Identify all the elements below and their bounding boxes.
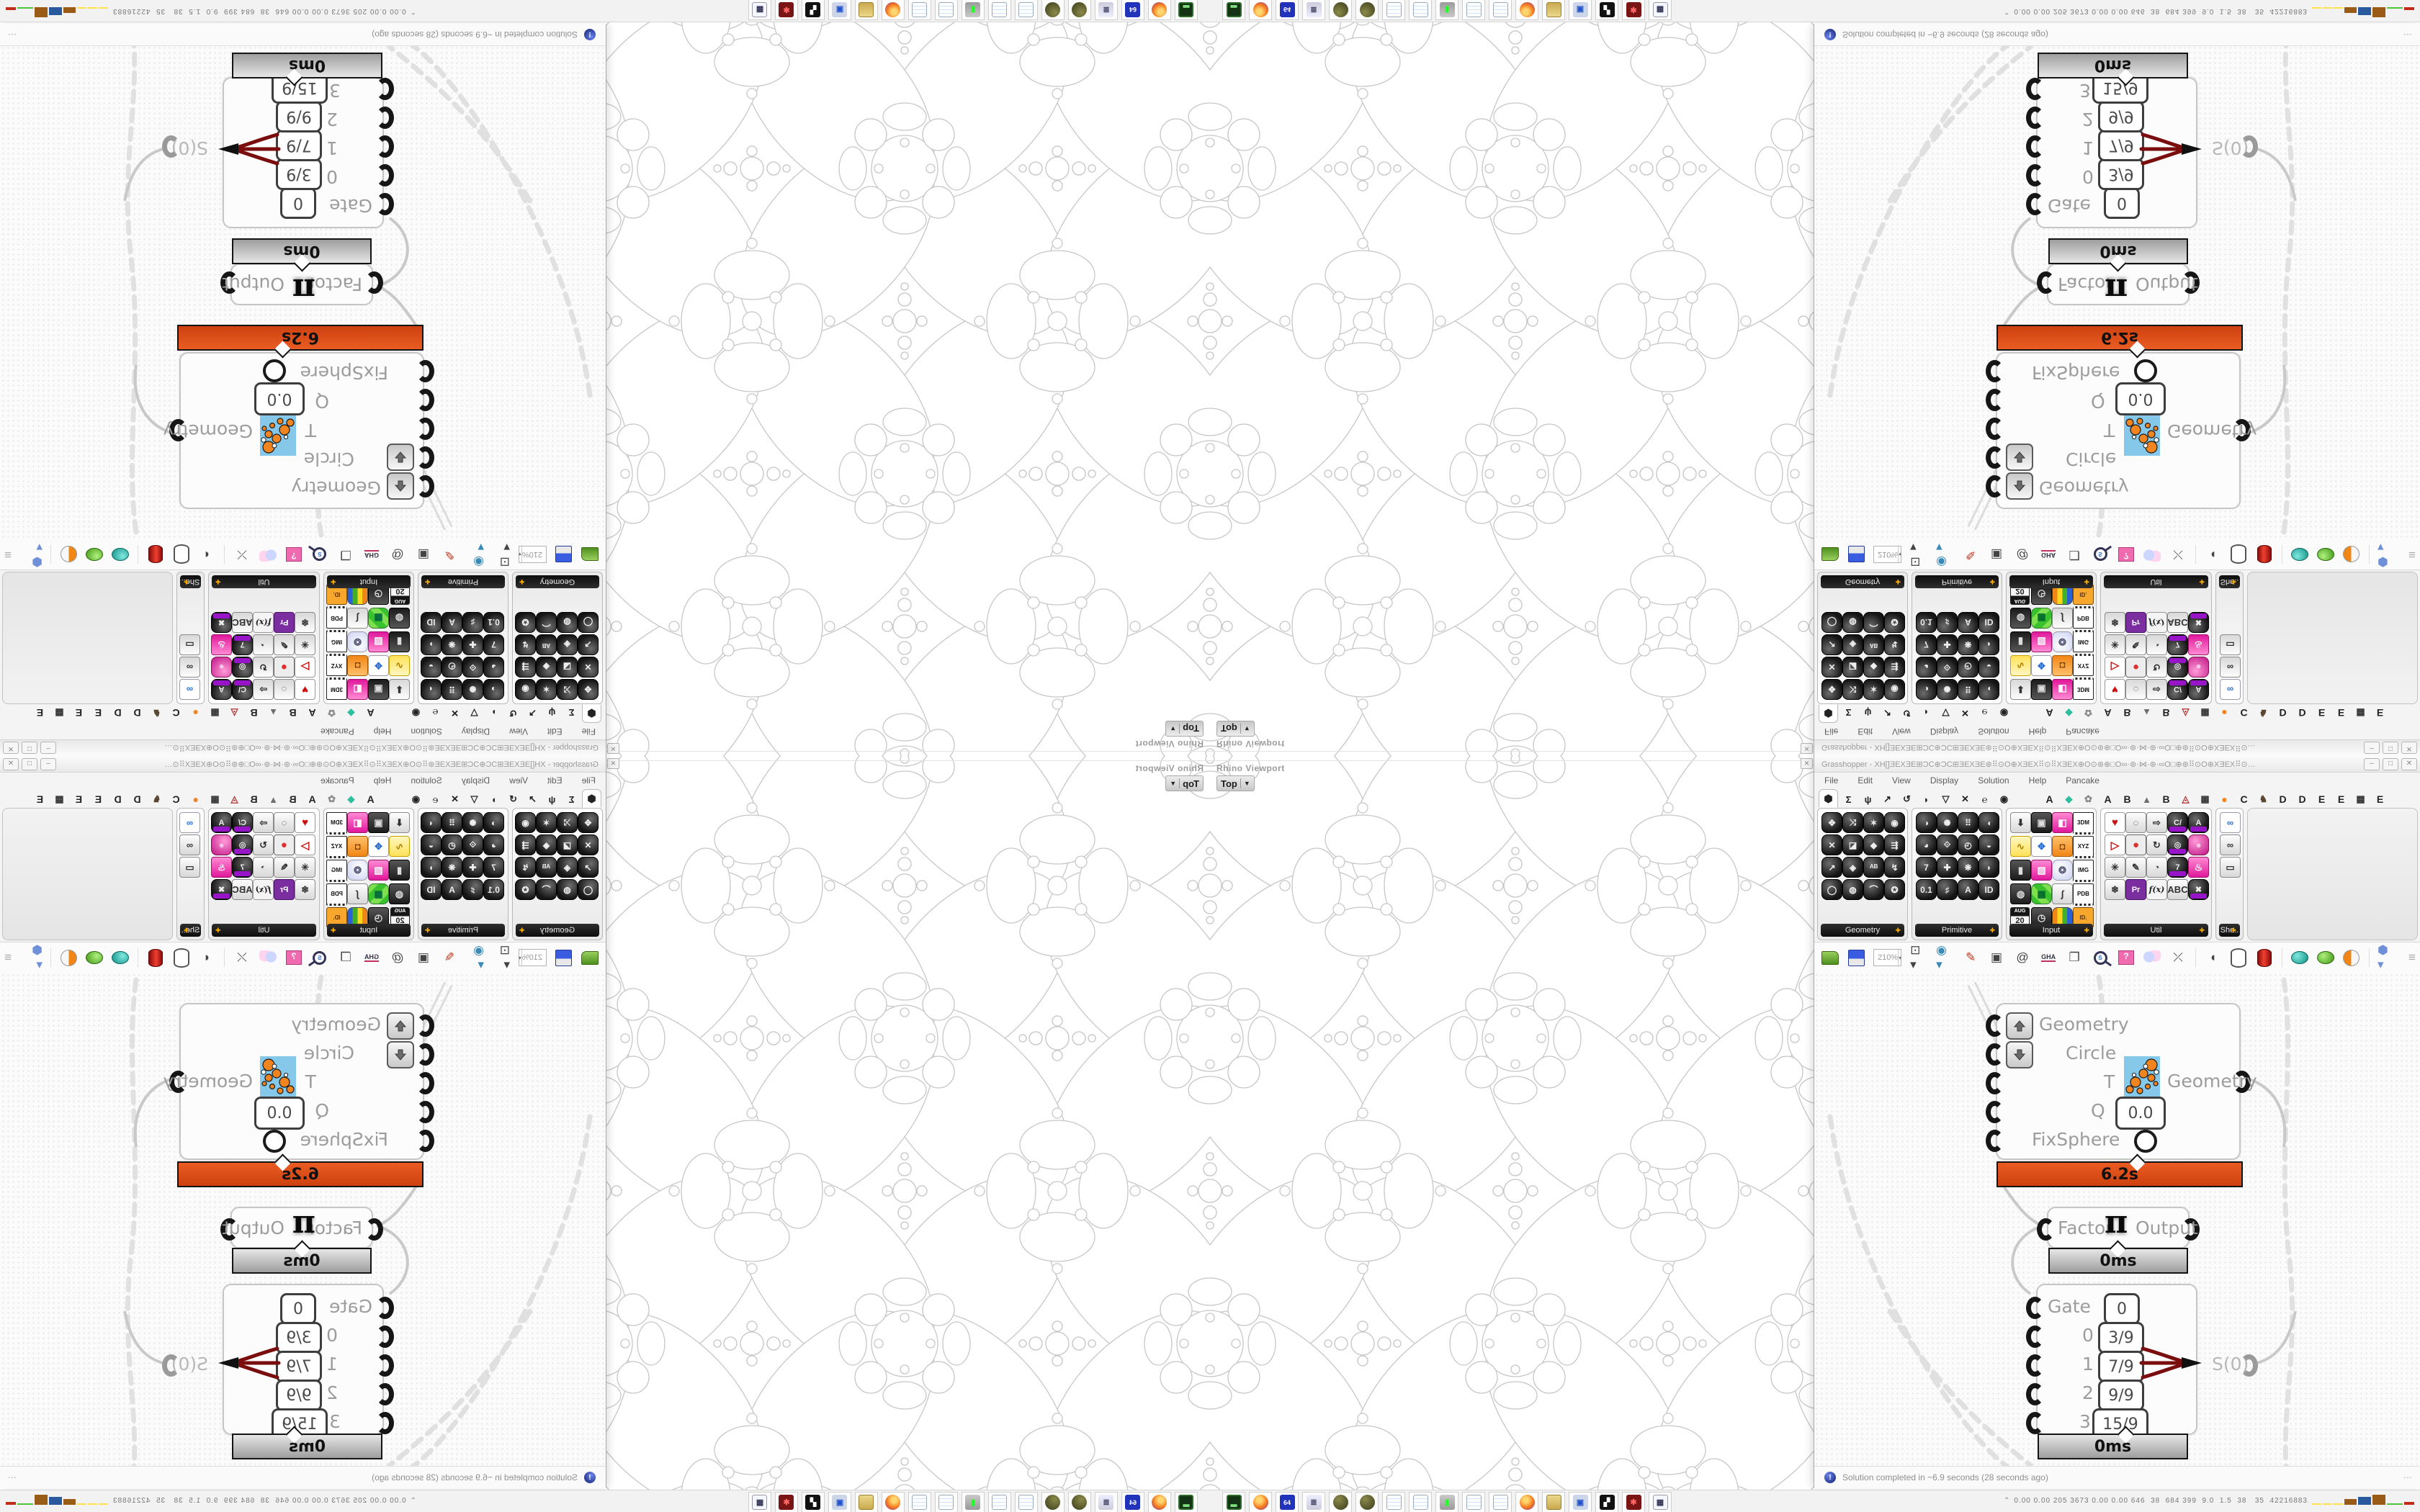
tab-display[interactable]: ◉ <box>407 791 425 808</box>
cat-icon[interactable]: ▞ <box>1595 1492 1618 1512</box>
floppy-64-icon[interactable]: 64 <box>1121 0 1144 20</box>
component-icon[interactable]: ◍ <box>2010 608 2031 629</box>
component-icon[interactable]: ∫ <box>347 883 368 904</box>
component-icon[interactable]: ◎ <box>232 657 253 678</box>
component-icon[interactable]: ◉ <box>1884 812 1905 833</box>
component-icon[interactable]: ❄ <box>2105 879 2125 900</box>
palette-group-label[interactable]: Input✚ <box>327 575 411 588</box>
tab-plugin-d2[interactable]: D <box>2293 791 2311 808</box>
component-icon[interactable]: ▮ <box>2010 860 2031 881</box>
component-icon[interactable]: 7 <box>2167 857 2188 878</box>
tab-plugin-e3[interactable]: E <box>2371 704 2389 721</box>
input-jack-0[interactable] <box>376 164 394 186</box>
component-icon[interactable]: ▮ <box>2010 631 2031 652</box>
component-icon[interactable]: ✶ <box>536 812 557 833</box>
component-icon[interactable]: ⤨ <box>1842 679 1863 700</box>
component-icon[interactable]: ✎ <box>2125 857 2146 878</box>
input-jack-1[interactable] <box>376 1354 394 1377</box>
close-icon[interactable]: ✕ <box>607 758 619 769</box>
tab-mesh[interactable]: ▽ <box>465 791 483 808</box>
open-file-icon[interactable] <box>581 545 599 564</box>
notepad-icon-2[interactable] <box>988 0 1011 20</box>
tab-plugin-e3[interactable]: E <box>2371 791 2389 808</box>
q-value-box[interactable]: 0.0 <box>2115 382 2166 415</box>
tab-mesh[interactable]: ▽ <box>465 704 483 721</box>
component-icon[interactable]: ● <box>274 657 295 678</box>
finder-icon[interactable]: S <box>2092 948 2109 967</box>
folder-icon[interactable] <box>1542 1492 1565 1512</box>
menu-item-help[interactable]: Help <box>374 775 392 786</box>
component-icon[interactable]: ◴ <box>442 657 462 678</box>
menu-item-solution[interactable]: Solution <box>1978 727 2009 737</box>
gumball-icon[interactable] <box>60 948 77 967</box>
input-jack-fixsphere[interactable] <box>416 360 434 382</box>
tab-surface[interactable]: ◗ <box>1917 704 1935 721</box>
tab-sets[interactable]: ψ <box>1859 704 1877 721</box>
preview-eye-icon[interactable]: ◉ ▾ <box>467 545 484 564</box>
package-icon[interactable]: ? <box>285 545 302 564</box>
component-icon[interactable]: C/ <box>232 812 253 833</box>
preview-off-icon[interactable]: ◖ <box>2204 948 2221 967</box>
menu-item-pancake[interactable]: Pancake <box>2066 727 2099 737</box>
component-icon[interactable]: ◖ <box>1978 812 1999 833</box>
preview-wireframe-icon[interactable] <box>2230 948 2247 967</box>
tab-plugin-d1[interactable]: D <box>128 704 146 721</box>
input-jack-3[interactable] <box>376 78 394 100</box>
zoom-level-dropdown[interactable]: 210%▾ <box>1873 949 1901 966</box>
stream-gate-component[interactable]: Gate 0 0 3/9 1 7/9 2 9/9 3 15/9 <box>223 1284 384 1435</box>
component-icon[interactable]: ⇶ <box>515 834 536 855</box>
palette-group-label[interactable]: Util✚ <box>212 575 316 588</box>
input-jack-circle[interactable] <box>416 446 434 469</box>
tab-plugin-a1[interactable]: A <box>2040 704 2058 721</box>
tab-plugin-pixel[interactable]: ▩ <box>2352 791 2370 808</box>
component-icon[interactable]: ◕ <box>483 834 504 855</box>
component-icon[interactable]: ▣ <box>368 679 389 700</box>
component-icon[interactable]: C/ <box>232 679 253 700</box>
tab-plugin-b2[interactable]: B <box>245 791 263 808</box>
tab-vector[interactable]: ↗ <box>524 704 542 721</box>
input-jack-t[interactable] <box>1986 418 2004 440</box>
component-icon[interactable]: ▨ <box>368 631 389 652</box>
tab-intersect[interactable]: ✕ <box>446 704 464 721</box>
mouse-teal-icon[interactable] <box>112 948 129 967</box>
close-icon[interactable]: ✕ <box>3 758 19 770</box>
component-icon[interactable]: ❄ <box>295 879 315 900</box>
component-icon[interactable]: ● <box>2188 834 2209 855</box>
component-icon[interactable]: ✥ <box>2031 836 2052 857</box>
component-icon[interactable]: ◔ <box>2146 857 2167 878</box>
preview-off-icon[interactable]: ◖ <box>2204 545 2221 564</box>
stream-gate-component[interactable]: Gate 0 0 3/9 1 7/9 2 9/9 3 15/9 <box>2036 77 2197 228</box>
cat-icon[interactable]: ▞ <box>1595 0 1618 20</box>
input-jack-t[interactable] <box>416 1072 434 1094</box>
component-icon[interactable]: ◑ <box>1916 812 1937 833</box>
menu-item-edit[interactable]: Edit <box>547 727 563 737</box>
tab-mesh[interactable]: ▽ <box>1937 704 1955 721</box>
tab-plugin-gem[interactable]: ◆ <box>342 704 360 721</box>
fixsphere-toggle[interactable] <box>2134 1130 2157 1153</box>
input-jack-gate[interactable] <box>2026 193 2044 215</box>
firefox-icon-2[interactable] <box>1515 0 1538 20</box>
notepad-icon-3[interactable] <box>1462 0 1485 20</box>
component-icon[interactable]: ᴬᴮ <box>1863 634 1884 655</box>
component-icon[interactable]: ◧ <box>2052 812 2073 833</box>
notepad-icon-2[interactable] <box>988 1492 1011 1512</box>
tab-maths[interactable]: Σ <box>1839 791 1857 808</box>
component-icon[interactable]: 3DM <box>2073 678 2094 700</box>
component-icon[interactable]: ✕ <box>578 657 599 678</box>
component-icon[interactable]: ✳ <box>295 634 315 655</box>
gh-titlebar[interactable]: Grasshopper - XH[]ƎEXƎE⊞ƆC⊕ƆC⊞ƎEXƎE⊛⠿⊙O⊕… <box>0 739 606 756</box>
console-app-icon[interactable]: ▂ <box>1222 1492 1245 1512</box>
tab-plugin-e2[interactable]: E <box>70 791 88 808</box>
component-icon[interactable]: ◗ <box>421 857 442 878</box>
palette-group-label[interactable]: Util✚ <box>2104 924 2208 937</box>
component-icon[interactable]: ID <box>421 612 442 633</box>
tab-plugin-e3[interactable]: E <box>31 704 49 721</box>
value-box[interactable]: 7/9 <box>276 1351 322 1382</box>
component-icon[interactable]: ✪ <box>515 612 536 633</box>
tab-plugin-d1[interactable]: D <box>128 791 146 808</box>
component-icon[interactable]: ◍ <box>389 608 410 629</box>
component-icon[interactable]: ⬇ <box>389 812 410 833</box>
tab-plugin-mountain[interactable]: ▲ <box>2138 704 2156 721</box>
component-icon[interactable]: ◘ <box>347 655 368 676</box>
component-icon[interactable]: ↗ <box>1821 634 1842 655</box>
terminal-icon[interactable]: ▮ <box>962 1492 985 1512</box>
menu-item-help[interactable]: Help <box>2029 727 2047 737</box>
component-icon[interactable]: ✳ <box>2105 857 2125 878</box>
tab-vector[interactable]: ↗ <box>524 791 542 808</box>
menu-item-file[interactable]: File <box>582 775 596 786</box>
zoom-level-dropdown[interactable]: 210%▾ <box>519 949 547 966</box>
chevron-down-icon[interactable]: ▼ <box>1170 725 1176 732</box>
input-jack-circle[interactable] <box>1986 1043 2004 1066</box>
tab-mesh[interactable]: ▽ <box>1937 791 1955 808</box>
component-icon[interactable]: ◯ <box>1821 879 1842 900</box>
component-icon[interactable]: ❂ <box>2052 860 2073 881</box>
component-icon[interactable]: ABC <box>232 612 253 633</box>
input-jack-gate[interactable] <box>376 193 394 215</box>
component-icon[interactable]: ◖ <box>1978 679 1999 700</box>
tab-plugin-a2[interactable]: A <box>303 704 321 721</box>
preview-shaded-icon[interactable] <box>2256 948 2273 967</box>
tab-curve[interactable]: ↺ <box>504 791 522 808</box>
component-icon[interactable]: 0.1 <box>483 879 504 900</box>
viewport-top-tab[interactable]: Top ▼ <box>1216 721 1255 737</box>
package-icon[interactable]: ? <box>285 948 302 967</box>
zoom-extents-icon[interactable]: ⊡ ▾ <box>1910 948 1927 967</box>
component-icon[interactable]: ◒ <box>421 834 442 855</box>
component-icon[interactable]: 7 <box>232 857 253 878</box>
input-jack-1[interactable] <box>2026 1354 2044 1377</box>
component-icon[interactable]: ID <box>1978 879 1999 900</box>
menu-item-solution[interactable]: Solution <box>1978 775 2009 786</box>
script-icon[interactable]: ≣ <box>1095 0 1118 20</box>
notepad-icon-2[interactable] <box>1409 1492 1432 1512</box>
tab-plugin-d2[interactable]: D <box>2293 704 2311 721</box>
tab-curve[interactable]: ↺ <box>1898 704 1916 721</box>
calculator-icon[interactable]: ▦ <box>748 0 771 20</box>
preview-eye-icon[interactable]: ◉ ▾ <box>1936 948 1953 967</box>
component-icon[interactable]: ◖ <box>421 812 442 833</box>
save-file-icon[interactable] <box>1847 948 1865 967</box>
component-icon[interactable]: ✎ <box>2125 634 2146 655</box>
floppy-64-icon[interactable]: 64 <box>1276 0 1299 20</box>
viewport-top-tab[interactable]: Top ▼ <box>1165 721 1204 737</box>
fixsphere-toggle[interactable] <box>2134 359 2157 382</box>
minimize-icon[interactable]: – <box>2364 742 2380 754</box>
component-icon[interactable]: ✚ <box>462 857 483 878</box>
input-jack-q[interactable] <box>1986 389 2004 411</box>
console-app-icon[interactable]: ▂ <box>1175 1492 1198 1512</box>
status-overflow[interactable]: ⋯ <box>6 30 17 40</box>
component-icon[interactable]: ◍ <box>1842 879 1863 900</box>
firefox-icon-2[interactable] <box>882 0 905 20</box>
wire-display-icon[interactable]: ⤫ <box>233 545 251 564</box>
calculator-icon[interactable]: ▦ <box>1649 0 1672 20</box>
component-icon[interactable]: ❂ <box>347 631 368 652</box>
component-icon[interactable]: ● <box>274 834 295 855</box>
tab-plugin-e3[interactable]: E <box>31 791 49 808</box>
component-icon[interactable]: ◌ <box>274 679 295 700</box>
component-icon[interactable]: ◔ <box>253 857 274 878</box>
tab-plugin-b2[interactable]: B <box>245 704 263 721</box>
component-icon[interactable]: ▷ <box>2105 834 2125 855</box>
component-icon[interactable]: ✥ <box>578 812 599 833</box>
input-jack-fixsphere[interactable] <box>1986 360 2004 382</box>
component-icon[interactable]: ∿ <box>2010 836 2031 857</box>
gh-titlebar[interactable]: Grasshopper - XH[]ƎEXƎE⊞ƆC⊕ƆC⊞ƎEXƎE⊛⠿⊙O⊕… <box>1814 756 2420 773</box>
sketch-pen-icon[interactable]: ✎ <box>441 948 458 967</box>
component-icon[interactable]: ⠿ <box>442 679 462 700</box>
computer-icon[interactable]: ▣ <box>1569 0 1592 20</box>
input-jack-factor[interactable] <box>2037 1218 2055 1241</box>
tab-plugin-b1[interactable]: B <box>284 791 302 808</box>
gumball-icon[interactable] <box>2343 545 2360 564</box>
component-icon[interactable]: ⬇ <box>389 679 410 700</box>
notepad-icon[interactable] <box>1015 0 1038 20</box>
tab-plugin-flower[interactable]: ✿ <box>323 704 341 721</box>
globe-icon[interactable] <box>1329 0 1352 20</box>
tab-plugin-e2[interactable]: E <box>2332 704 2350 721</box>
component-icon[interactable]: ♥ <box>295 679 315 700</box>
tab-plugin-flower[interactable]: ✿ <box>323 791 341 808</box>
projector-icon[interactable]: ▣ <box>1988 948 2005 967</box>
input-jack-q[interactable] <box>416 389 434 411</box>
input-jack-gate[interactable] <box>376 1297 394 1319</box>
component-icon[interactable]: A <box>2188 812 2209 833</box>
input-jack-fixsphere[interactable] <box>1986 1130 2004 1152</box>
menu-item-file[interactable]: File <box>1824 727 1838 737</box>
tab-plugin-e2[interactable]: E <box>2332 791 2350 808</box>
component-icon[interactable]: ↻ <box>2146 657 2167 678</box>
open-file-icon[interactable] <box>581 948 599 967</box>
open-file-icon[interactable] <box>1821 545 1839 564</box>
tab-params[interactable]: ⬢ <box>1819 789 1838 808</box>
notepad-icon[interactable] <box>1382 1492 1405 1512</box>
save-file-icon[interactable] <box>555 948 573 967</box>
fixsphere-toggle[interactable] <box>263 1130 286 1153</box>
output-jack-s0[interactable] <box>162 1354 180 1377</box>
mouse-green-icon[interactable] <box>86 948 103 967</box>
finder-icon[interactable]: S <box>311 948 328 967</box>
component-icon[interactable]: ABC <box>2167 879 2188 900</box>
input-jack-fixsphere[interactable] <box>416 1130 434 1152</box>
component-icon[interactable]: ▭ <box>179 857 200 878</box>
component-icon[interactable]: ♨ <box>2188 857 2209 878</box>
input-jack-2[interactable] <box>2026 1383 2044 1405</box>
mouse-green-icon[interactable] <box>2317 545 2334 564</box>
tab-transform[interactable]: ℮ <box>1976 704 1994 721</box>
close-icon[interactable]: ✕ <box>2401 742 2417 754</box>
window-layout-icon[interactable]: ❐ <box>337 948 354 967</box>
tab-vector[interactable]: ↗ <box>1878 704 1896 721</box>
firefox-icon[interactable] <box>1148 0 1171 20</box>
folder-icon[interactable] <box>855 1492 878 1512</box>
input-jack-geometry[interactable] <box>416 475 434 498</box>
component-icon[interactable]: ◆ <box>1863 834 1884 855</box>
component-icon[interactable]: ◆ <box>536 657 557 678</box>
component-icon[interactable]: ✺ <box>1937 679 1958 700</box>
console-app-icon[interactable]: ▂ <box>1222 0 1245 20</box>
cat-icon[interactable]: ▞ <box>802 1492 825 1512</box>
globe-icon[interactable] <box>1068 1492 1091 1512</box>
gear-icon[interactable]: ✱ <box>775 1492 798 1512</box>
firefox-icon[interactable] <box>1249 1492 1272 1512</box>
tab-plugin-shield[interactable]: ◬ <box>2177 791 2195 808</box>
component-icon[interactable]: ◎ <box>2167 657 2188 678</box>
tab-plugin-grid[interactable]: ▦ <box>2196 704 2214 721</box>
menu-item-edit[interactable]: Edit <box>1857 775 1873 786</box>
input-jack-3[interactable] <box>376 1412 394 1434</box>
firefox-icon[interactable] <box>1249 0 1272 20</box>
component-icon[interactable]: XYZ <box>326 654 347 676</box>
component-icon[interactable]: ↻ <box>253 657 274 678</box>
component-icon[interactable]: ▭ <box>179 634 200 655</box>
preview-wireframe-icon[interactable] <box>173 545 190 564</box>
component-icon[interactable]: ∞ <box>2220 812 2241 833</box>
tab-params[interactable]: ⬢ <box>1819 704 1838 723</box>
component-icon[interactable]: ⇶ <box>1884 657 1905 678</box>
component-icon[interactable]: ▣ <box>368 812 389 833</box>
component-icon[interactable]: ◯ <box>578 879 599 900</box>
value-box[interactable]: 3/9 <box>2098 1322 2144 1354</box>
tab-display[interactable]: ◉ <box>1995 704 2013 721</box>
input-jack-3[interactable] <box>2026 1412 2044 1434</box>
component-icon[interactable]: ♯ <box>1937 612 1958 633</box>
tab-plugin-gem[interactable]: ◆ <box>342 791 360 808</box>
viewport-top-tab[interactable]: Top ▼ <box>1165 775 1204 791</box>
menu-item-display[interactable]: Display <box>462 727 490 737</box>
input-jack-q[interactable] <box>416 1101 434 1123</box>
tab-plugin-pixel[interactable]: ▩ <box>50 704 68 721</box>
folder-icon[interactable] <box>1542 0 1565 20</box>
computer-icon[interactable]: ▣ <box>828 0 851 20</box>
component-icon[interactable]: ✥ <box>578 679 599 700</box>
tab-curve[interactable]: ↺ <box>504 704 522 721</box>
fixsphere-toggle[interactable] <box>263 359 286 382</box>
input-jack-0[interactable] <box>2026 164 2044 186</box>
component-icon[interactable]: ◴ <box>442 834 462 855</box>
gh-canvas[interactable]: Geometry Circle T Q 0.0 FixSphere <box>0 973 606 1466</box>
calculator-icon[interactable]: ▦ <box>748 1492 771 1512</box>
component-icon[interactable]: ✶ <box>536 679 557 700</box>
tab-plugin-a1[interactable]: A <box>2040 791 2058 808</box>
input-jack-q[interactable] <box>1986 1101 2004 1123</box>
tab-surface[interactable]: ◗ <box>1917 791 1935 808</box>
component-icon[interactable]: ◪ <box>1842 834 1863 855</box>
component-icon[interactable]: ∫ <box>2052 883 2073 904</box>
palette-group-label[interactable]: Util✚ <box>2104 575 2208 588</box>
component-icon[interactable]: ◍ <box>1842 612 1863 633</box>
save-file-icon[interactable] <box>1847 545 1865 564</box>
component-icon[interactable]: ∞ <box>179 657 200 678</box>
tab-plugin-e2[interactable]: E <box>70 704 88 721</box>
component-icon[interactable]: ↗ <box>578 634 599 655</box>
q-value-box[interactable]: 0.0 <box>254 382 305 415</box>
component-icon[interactable]: ◧ <box>2052 679 2073 700</box>
notepad-icon-4[interactable] <box>1489 1492 1512 1512</box>
wire-display-icon[interactable]: ⤫ <box>2169 948 2187 967</box>
component-icon[interactable]: ◒ <box>1978 834 1999 855</box>
component-icon[interactable]: ∞ <box>179 812 200 833</box>
tab-display[interactable]: ◉ <box>407 704 425 721</box>
component-icon[interactable]: ↻ <box>253 834 274 855</box>
floppy-64-icon[interactable]: 64 <box>1276 1492 1299 1512</box>
tab-plugin-pixel[interactable]: ▩ <box>50 791 68 808</box>
component-icon[interactable]: ▭ <box>2220 634 2241 655</box>
component-icon[interactable]: ▨ <box>368 860 389 881</box>
tab-intersect[interactable]: ✕ <box>446 791 464 808</box>
balloons-icon[interactable] <box>259 948 277 967</box>
globe-icon-2[interactable] <box>1355 1492 1379 1512</box>
gha-assembler-icon[interactable]: GHA <box>2040 948 2057 967</box>
component-icon[interactable]: ♥ <box>2105 679 2125 700</box>
component-icon[interactable]: ◗ <box>1978 857 1999 878</box>
component-icon[interactable]: ⇨ <box>253 812 274 833</box>
component-icon[interactable]: f(x) <box>253 879 274 900</box>
component-icon[interactable]: ● <box>2125 834 2146 855</box>
menu-item-solution[interactable]: Solution <box>411 727 442 737</box>
tab-plugin-mountain[interactable]: ▲ <box>264 791 282 808</box>
output-jack-s0[interactable] <box>2240 135 2258 158</box>
component-icon[interactable]: ◴ <box>1958 834 1978 855</box>
component-icon[interactable]: ◎ <box>232 834 253 855</box>
save-file-icon[interactable] <box>555 545 573 564</box>
component-icon[interactable]: ∿ <box>389 655 410 676</box>
gear-icon[interactable]: ✱ <box>1622 0 1645 20</box>
preview-wireframe-icon[interactable] <box>2230 545 2247 564</box>
globe-icon-2[interactable] <box>1355 0 1379 20</box>
fixsphere-cluster-component[interactable]: Geometry Circle T Q 0.0 FixSphere <box>1996 1003 2241 1160</box>
component-icon[interactable]: 20 <box>390 585 410 605</box>
component-icon[interactable]: ✖ <box>211 612 232 633</box>
component-icon[interactable]: ✥ <box>368 836 389 857</box>
input-jack-factor[interactable] <box>365 271 383 294</box>
palette-group-label[interactable]: Sho..✚ <box>2219 575 2240 588</box>
component-icon[interactable]: ✕ <box>1821 834 1842 855</box>
component-icon[interactable]: ✎ <box>274 634 295 655</box>
tab-plugin-orange-dot[interactable]: ● <box>2215 704 2233 721</box>
menu-item-pancake[interactable]: Pancake <box>321 727 354 737</box>
floppy-64-icon[interactable]: 64 <box>1121 1492 1144 1512</box>
tab-plugin-a2[interactable]: A <box>2099 791 2117 808</box>
component-icon[interactable]: ♯ <box>1937 879 1958 900</box>
tab-plugin-d2[interactable]: D <box>109 704 127 721</box>
component-icon[interactable]: C/ <box>2167 679 2188 700</box>
